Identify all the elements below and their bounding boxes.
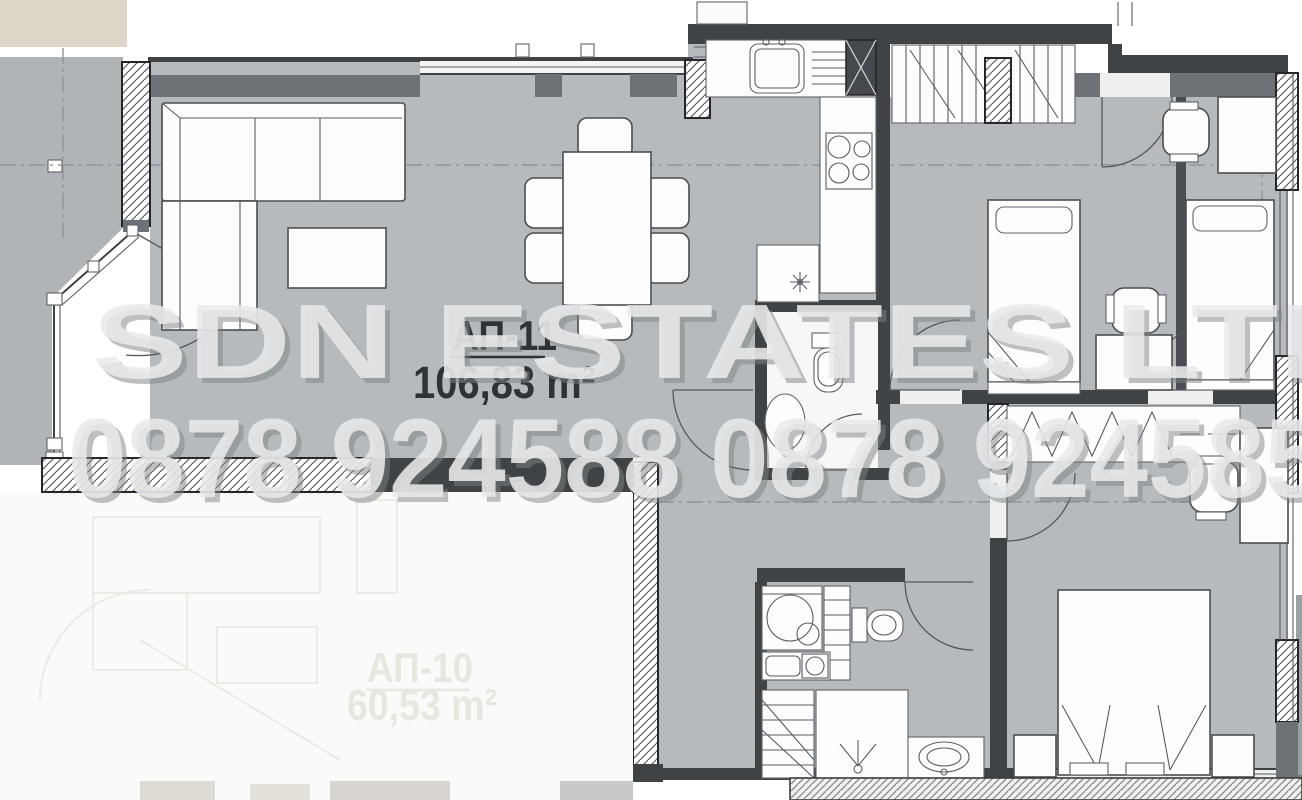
coffee-table [288, 228, 386, 288]
desk-chair-2 [1163, 102, 1209, 162]
kitchen-sink [750, 39, 804, 93]
pillow [1193, 206, 1267, 231]
wall-band [150, 75, 420, 97]
kitchen-divider-wall [876, 24, 890, 312]
washing-machine [762, 586, 822, 650]
area-ap10: 60,53 m² [347, 681, 497, 730]
nightstand [1212, 735, 1254, 777]
floor-plan-page: АП-10 60,53 m² АП-11 106,83 m² SDN ESTAT… [0, 0, 1302, 800]
corridor-floor [658, 582, 755, 768]
bathroom-top-wall [757, 568, 905, 582]
bathroom-counter-sink [762, 652, 830, 680]
toilet-2 [852, 608, 903, 642]
entrance-wardrobe [892, 45, 1075, 123]
desk-2 [1218, 97, 1276, 173]
wall-hatched-column [122, 62, 150, 226]
watermark-company: SDN ESTATES LTD [92, 283, 1302, 401]
ap10-overlay: АП-10 60,53 m² [0, 493, 633, 800]
beige-corner [0, 0, 127, 47]
pillow [996, 207, 1072, 233]
entrance-opening [1100, 73, 1170, 97]
shower [816, 690, 908, 778]
terrace-hatch [790, 778, 1302, 800]
watermark-phones: 0878 924588 0878 924585 [68, 396, 1302, 521]
nightstand [1014, 735, 1056, 777]
wall-hatched-pier [1276, 640, 1298, 722]
wardrobe-shelves [762, 690, 814, 778]
bed-3 [1058, 590, 1210, 775]
watermarks: SDN ESTATES LTD SDN ESTATES LTD 0878 924… [68, 283, 1302, 526]
vanity-sink [908, 737, 984, 779]
wall-hatched-pier [1276, 73, 1298, 190]
floor-plan-svg: АП-10 60,53 m² АП-11 106,83 m² SDN ESTAT… [0, 0, 1302, 800]
fridge-icon [846, 40, 876, 95]
